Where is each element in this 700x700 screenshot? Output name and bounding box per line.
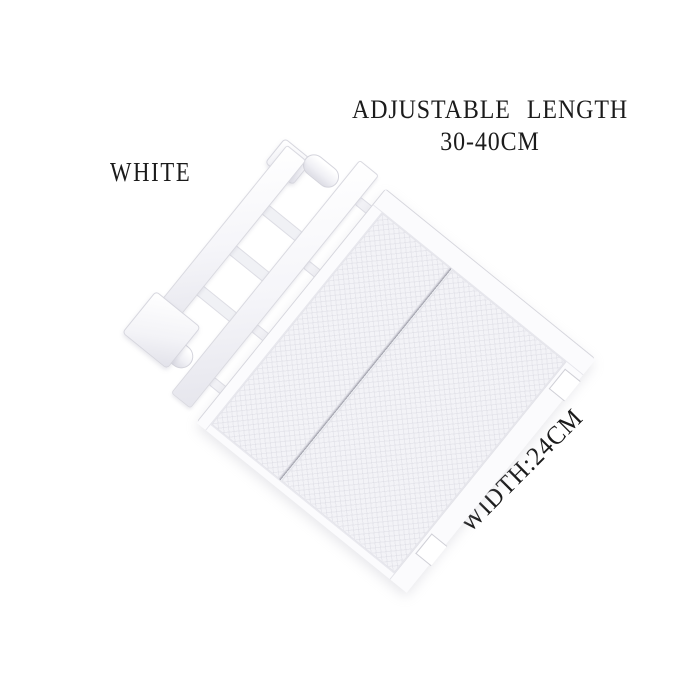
product-photo-canvas: ADJUSTABLE LENGTH 30-40CM WHITE WIDTH:24… [0,0,700,700]
adjustable-length-label: ADJUSTABLE LENGTH 30-40CM [352,94,628,158]
adjustable-length-text: ADJUSTABLE LENGTH [352,94,628,126]
color-label: WHITE [110,157,191,188]
shelf-panel [197,188,596,591]
length-range-text: 30-40CM [352,126,628,158]
